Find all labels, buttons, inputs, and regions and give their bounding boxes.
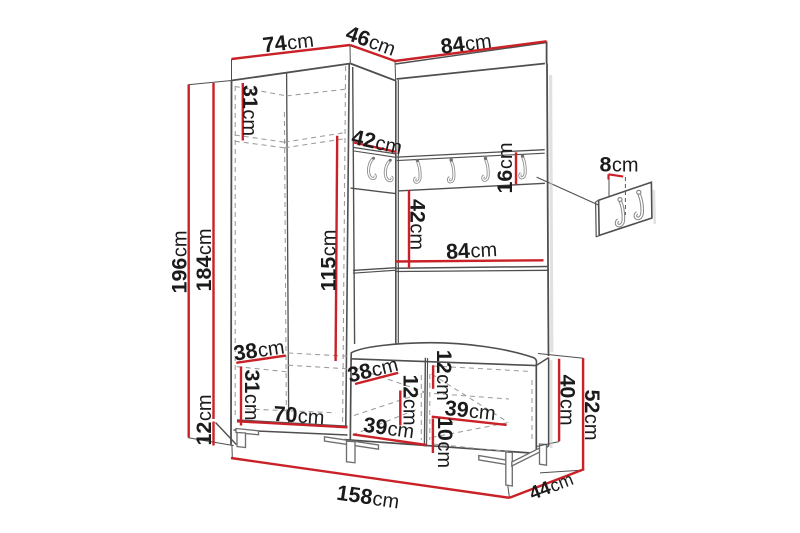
svg-text:10cm: 10cm — [433, 417, 457, 468]
svg-text:40cm: 40cm — [556, 374, 580, 425]
svg-text:31cm: 31cm — [238, 85, 262, 136]
svg-text:12cm: 12cm — [432, 350, 456, 401]
svg-text:52cm: 52cm — [580, 389, 604, 440]
svg-text:184cm: 184cm — [192, 228, 216, 291]
svg-text:16cm: 16cm — [493, 142, 517, 193]
svg-text:115cm: 115cm — [316, 230, 340, 292]
svg-text:84cm: 84cm — [445, 237, 497, 264]
svg-text:12cm: 12cm — [192, 394, 216, 445]
svg-text:70cm: 70cm — [273, 402, 326, 430]
svg-text:196cm: 196cm — [168, 230, 192, 293]
svg-text:12cm: 12cm — [399, 374, 423, 425]
svg-text:8cm: 8cm — [599, 153, 638, 177]
svg-text:42cm: 42cm — [405, 199, 429, 250]
svg-text:31cm: 31cm — [240, 369, 264, 420]
